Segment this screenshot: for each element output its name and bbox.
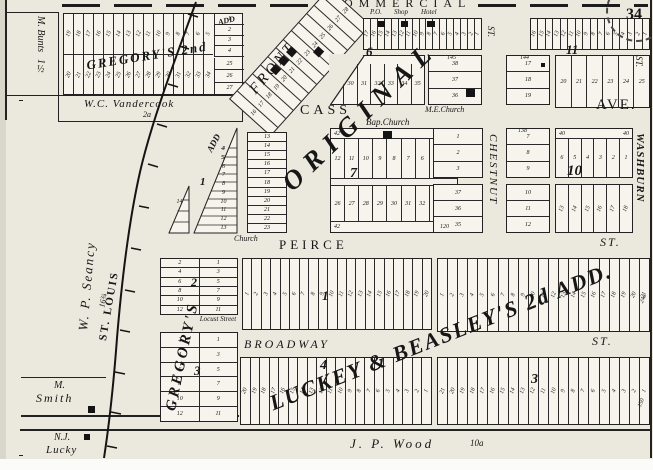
lot-26: 26: [331, 186, 345, 221]
block10-corner: 40: [623, 131, 629, 137]
block7-corner: 42: [334, 224, 340, 230]
lot-7: 7: [507, 129, 549, 145]
lot-14: 14: [385, 19, 392, 49]
lot-11: 11: [200, 306, 238, 314]
lot-4: 4: [271, 259, 280, 329]
lot-9: 9: [583, 19, 590, 49]
lot-12: 12: [529, 358, 539, 424]
lot-20: 20: [556, 56, 572, 107]
boundary-line: [5, 12, 59, 13]
lb-block-3-number: 3: [531, 372, 538, 388]
block-8b-south: 101112: [506, 184, 550, 233]
lot-36: 36: [434, 201, 482, 217]
wedge-block-number: 1: [200, 176, 206, 188]
owner-wood: J. P. Wood: [350, 436, 434, 452]
me-church-building-icon: [466, 89, 475, 97]
lot-14: 14: [366, 259, 375, 329]
church-label: Church: [234, 234, 258, 243]
lot-3: 3: [200, 268, 238, 277]
lot-15: 15: [104, 14, 114, 54]
lot-8: 8: [387, 139, 401, 178]
wedge-small-lots: 141516: [172, 196, 187, 230]
lot-16: 16: [594, 185, 607, 232]
lot-15: 15: [499, 358, 509, 424]
lot-1: 1: [620, 139, 632, 177]
lot-13: 13: [212, 223, 235, 232]
lot-28: 28: [359, 186, 373, 221]
lot-14: 14: [172, 196, 187, 207]
lot-5: 5: [600, 358, 610, 424]
lot-13: 13: [124, 14, 134, 54]
block-8a-north: 123: [433, 128, 483, 178]
block-6-number: 6: [366, 44, 373, 60]
lot-7: 7: [212, 171, 235, 180]
block8b-note: 138: [518, 128, 527, 134]
lot-13: 13: [519, 358, 529, 424]
lot-11: 11: [212, 206, 235, 215]
lot-20: 20: [630, 259, 640, 331]
owner-smith-last: Smith: [36, 391, 73, 406]
lot-9: 9: [507, 162, 549, 177]
lot-3: 3: [262, 259, 271, 329]
chestnut-street-label: CHESTNUT: [487, 134, 499, 205]
lot-6: 6: [290, 259, 299, 329]
lot-18: 18: [620, 185, 632, 232]
lot-11: 11: [539, 358, 549, 424]
lot-8: 8: [309, 259, 318, 329]
lot-16: 16: [94, 14, 104, 54]
lot-7: 7: [598, 19, 605, 49]
lot-10: 10: [212, 197, 235, 206]
lot-21: 21: [572, 56, 588, 107]
lot-8: 8: [507, 145, 549, 161]
lot-19: 19: [507, 89, 549, 104]
lot-37: 37: [429, 72, 481, 88]
lot-10: 10: [507, 185, 549, 201]
lot-37: 37: [434, 185, 482, 201]
lot-27: 27: [345, 186, 359, 221]
lot-17: 17: [394, 259, 403, 329]
lot-2: 2: [252, 259, 261, 329]
lot-11: 11: [338, 259, 347, 329]
lot-6: 6: [212, 162, 235, 171]
lot-14: 14: [509, 358, 519, 424]
owner-vandercook: W.C. Vandercook: [84, 98, 174, 110]
lot-15: 15: [172, 207, 187, 218]
peirce-street-label: PEIRCE: [279, 237, 348, 253]
lot-5: 5: [281, 259, 290, 329]
owner-bunts-acres: 1½: [35, 59, 46, 75]
owner-bunts-name: M. Bunts: [35, 16, 46, 52]
peirce-st-suffix: ST.: [600, 235, 621, 250]
lot-7: 7: [300, 259, 309, 329]
lot-13: 13: [356, 259, 365, 329]
building-icon: [541, 63, 545, 67]
lot-32: 32: [184, 55, 194, 94]
lot-18: 18: [404, 259, 413, 329]
block-10-south: 131415161718: [555, 184, 633, 233]
lot-9: 9: [200, 296, 238, 305]
lot-31: 31: [174, 55, 184, 94]
lucky-building-icon: [84, 434, 90, 440]
lot-7: 7: [200, 377, 238, 392]
lot-17: 17: [84, 14, 94, 54]
shop-building-icon: [401, 21, 408, 27]
lot-21: 21: [438, 358, 448, 424]
owner-bunts: M. Bunts 1½: [16, 16, 46, 94]
owner-wood-acres: 10a: [470, 438, 484, 448]
owner-lucky-first: N.J.: [54, 432, 70, 443]
lot-19: 19: [251, 358, 261, 424]
lot-10: 10: [359, 139, 373, 178]
lot-12: 12: [347, 259, 356, 329]
lot-33: 33: [194, 55, 204, 94]
block10-corner: 40: [559, 131, 565, 137]
lot-19: 19: [413, 259, 422, 329]
chestnut-st-north-label: ST.: [486, 26, 496, 37]
owner-vandercook-acres: 2a: [143, 110, 151, 119]
lot-16: 16: [248, 160, 286, 169]
lot-9: 9: [200, 392, 238, 407]
seancy-west-double-line: [19, 100, 23, 456]
washburn-st-north-label: ST.: [634, 56, 644, 67]
lot-2: 2: [161, 259, 199, 268]
lot-3: 3: [200, 348, 238, 363]
lot-9: 9: [559, 358, 569, 424]
lot-20: 20: [423, 259, 431, 329]
lot-12: 12: [212, 215, 235, 224]
lot-25: 25: [215, 58, 244, 70]
lot-3: 3: [403, 358, 413, 424]
lot-18: 18: [507, 72, 549, 88]
commercial-street-line-left: [62, 4, 330, 7]
lot-19: 19: [64, 14, 74, 54]
lot-13: 13: [556, 185, 569, 232]
lot-2: 2: [630, 358, 640, 424]
lot-10: 10: [549, 358, 559, 424]
lot-1: 1: [243, 259, 252, 329]
me-block-note: 145: [447, 55, 456, 61]
lot-11: 11: [507, 201, 549, 217]
wood-north-line: [20, 429, 650, 431]
lot-19: 19: [458, 358, 468, 424]
lot-3: 3: [620, 358, 630, 424]
lot-10: 10: [328, 259, 337, 329]
owner-seancy: W. P. Seancy: [73, 221, 100, 352]
lot-12: 12: [507, 217, 549, 232]
lot-5: 5: [200, 363, 238, 378]
lot-19: 19: [620, 259, 630, 331]
po-building-icon: [378, 21, 385, 27]
lot-13: 13: [392, 19, 399, 49]
block17-note: 144: [520, 55, 529, 61]
owner-lucky-last: Lucky: [46, 444, 77, 456]
gregory-block-3-number: 3: [194, 363, 201, 379]
block10-strip: 40 40: [556, 129, 632, 139]
bap-church-building-icon: [383, 131, 392, 139]
lot-3: 3: [434, 162, 482, 177]
shop-label: Shop: [394, 8, 408, 16]
lot-20: 20: [448, 358, 458, 424]
lot-8: 8: [212, 180, 235, 189]
lot-17: 17: [478, 358, 488, 424]
lot-9: 9: [373, 139, 387, 178]
smith-north-line: [21, 377, 106, 378]
lot-11: 11: [200, 407, 238, 421]
lot-18: 18: [468, 358, 478, 424]
lot-32: 32: [416, 186, 430, 221]
lot-26: 26: [215, 70, 244, 82]
lot-5: 5: [212, 154, 235, 163]
lot-1: 1: [200, 333, 238, 348]
lot-18: 18: [74, 14, 84, 54]
wedge-note: 43: [170, 226, 176, 232]
lot-14: 14: [546, 19, 553, 49]
plat-map-page: COMMERCIAL 34 M. Bunts 1½ 19181716151413…: [0, 0, 653, 470]
smith-building-icon: [88, 406, 95, 413]
owner-smith-first: M.: [54, 380, 65, 391]
lot-15: 15: [538, 19, 545, 49]
lot-1: 1: [200, 259, 238, 268]
lot-4: 4: [582, 139, 595, 177]
lot-7: 7: [402, 139, 416, 178]
lot-15: 15: [248, 151, 286, 160]
lot-14: 14: [569, 185, 582, 232]
locust-street-label: Locust Street: [199, 315, 237, 323]
wedge-lot-numbers: 45678910111213: [212, 145, 235, 232]
lot-4: 4: [212, 145, 235, 154]
block-7-number: 7: [350, 166, 357, 182]
lot-29: 29: [373, 186, 387, 221]
washburn-street-label: WASHBURN: [634, 133, 646, 203]
lot-2: 2: [434, 145, 482, 161]
lot-8: 8: [569, 358, 579, 424]
lot-2: 2: [607, 139, 620, 177]
boundary-line: [58, 12, 59, 96]
lot-6: 6: [589, 358, 599, 424]
lot-7: 7: [579, 358, 589, 424]
lot-13: 13: [248, 133, 286, 142]
block-8b-north: 789: [506, 128, 550, 178]
lot-34: 34: [204, 55, 213, 94]
scan-edge-bottom: [0, 459, 653, 470]
lot-30: 30: [387, 186, 401, 221]
lot-8: 8: [591, 19, 598, 49]
broadway-street-label: BROADWAY: [244, 337, 330, 352]
cass-ave-label: AVE.: [596, 97, 637, 114]
lot-6: 6: [416, 139, 430, 178]
boundary-line: [5, 0, 7, 120]
lot-16: 16: [385, 259, 394, 329]
block8a-note: 120: [440, 224, 449, 230]
lot-1: 1: [422, 358, 431, 424]
lot-15: 15: [582, 185, 595, 232]
block-11-number: 11: [566, 42, 578, 58]
lb-block-1-number: 1: [322, 288, 329, 304]
lot-15: 15: [375, 259, 384, 329]
lot-2: 2: [413, 358, 423, 424]
lot-20: 20: [241, 358, 251, 424]
lot-17: 17: [607, 185, 620, 232]
broadway-st-suffix: ST.: [592, 334, 613, 349]
lot-1: 1: [640, 358, 649, 424]
page-number: 34: [626, 6, 642, 24]
lot-4: 4: [610, 358, 620, 424]
lot-14: 14: [114, 14, 124, 54]
lot-16: 16: [531, 19, 538, 49]
me-church-label: M.E.Church: [425, 105, 464, 114]
lot-9: 9: [212, 189, 235, 198]
map-east-edge: [650, 0, 652, 458]
lot-1: 1: [434, 129, 482, 145]
lb-block-1: 1234567891011121314151617181920: [242, 258, 432, 330]
lot-31: 31: [402, 186, 416, 221]
lot-14: 14: [248, 142, 286, 151]
hotel-label: Hotel: [421, 8, 437, 16]
lot-3: 3: [594, 139, 607, 177]
lot-16: 16: [488, 358, 498, 424]
po-label: P.O.: [370, 8, 382, 16]
block-10-number: 10: [567, 163, 582, 180]
lb-block-3: 212019181716151413121110987654321: [437, 357, 650, 425]
lot-13: 13: [553, 19, 560, 49]
